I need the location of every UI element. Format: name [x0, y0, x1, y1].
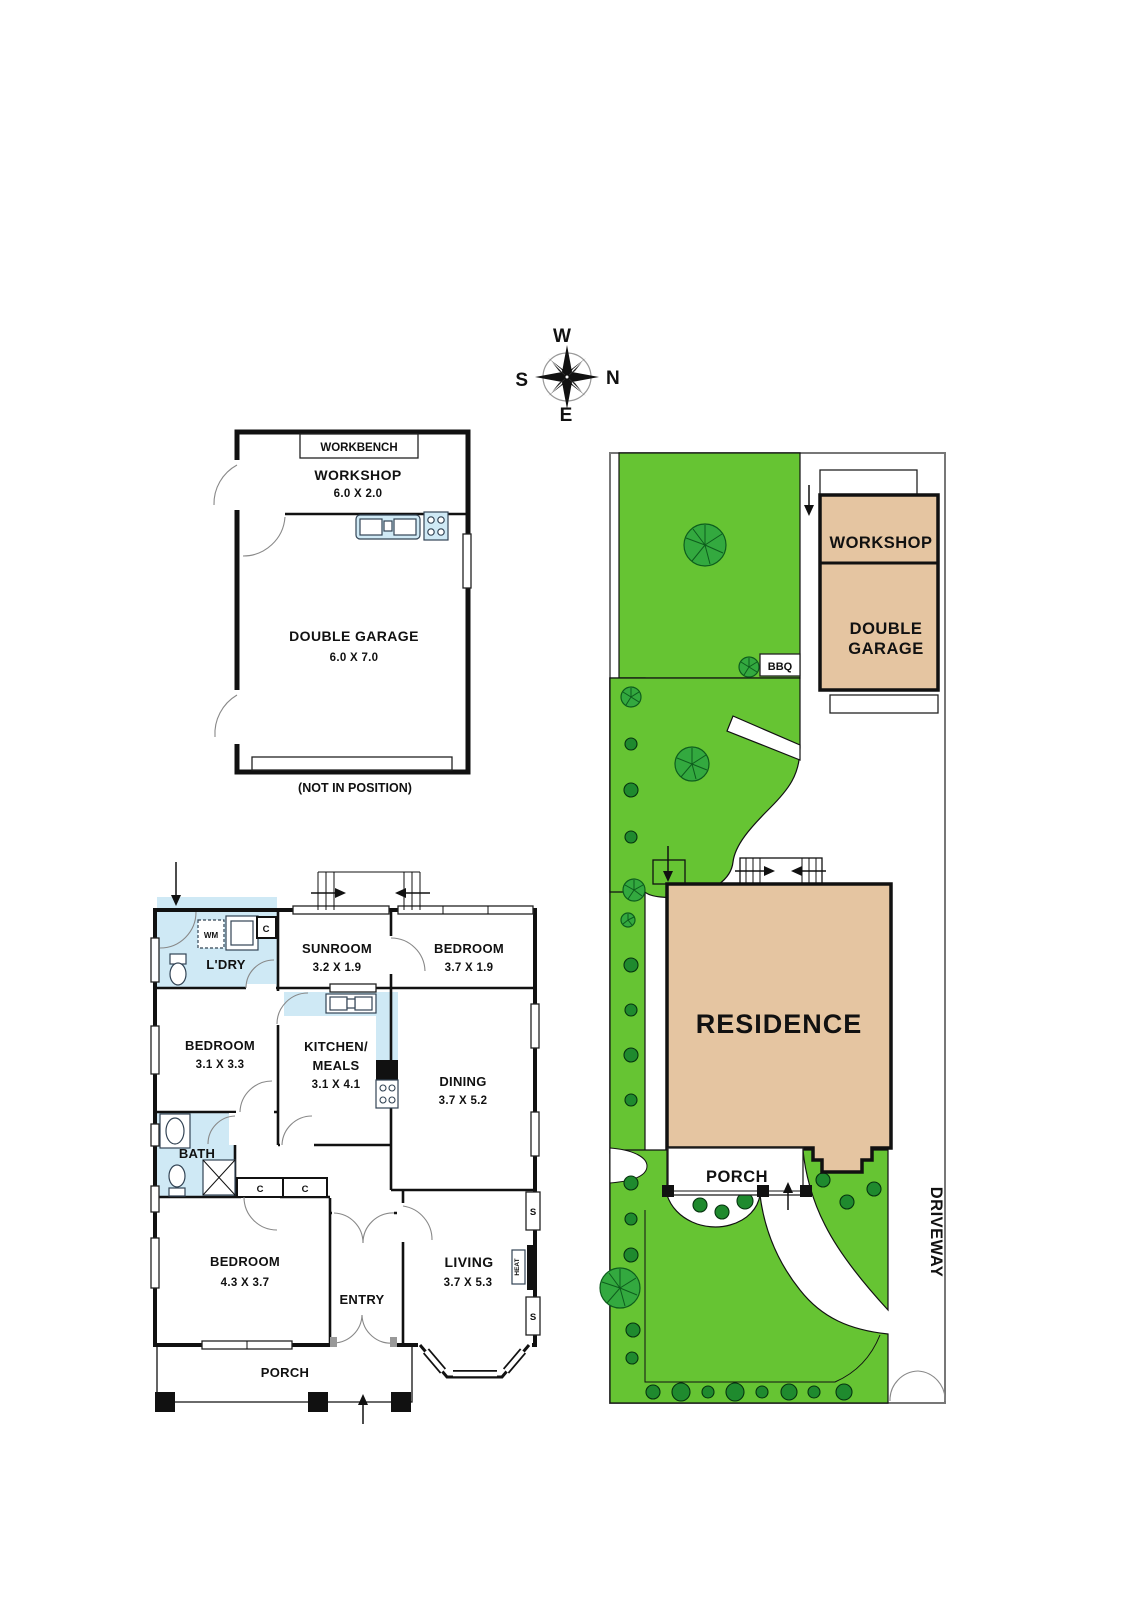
laundry-label: L'DRY	[206, 957, 246, 972]
kitchen-label-2: MEALS	[313, 1058, 360, 1073]
site-garage-label-2: GARAGE	[848, 640, 923, 658]
porch-pillar	[662, 1185, 674, 1197]
sink-icon	[356, 515, 420, 539]
window	[151, 1186, 159, 1212]
not-in-position-note: (NOT IN POSITION)	[298, 781, 412, 795]
heater-icon	[527, 1245, 537, 1290]
toilet-icon	[169, 1165, 185, 1196]
porch-pillar	[800, 1185, 812, 1197]
dining-dims: 3.7 X 5.2	[439, 1095, 488, 1107]
site-plan: WORKSHOP DOUBLE GARAGE BBQ RESIDENCE POR…	[600, 453, 945, 1403]
sunroom-label: SUNROOM	[302, 941, 372, 956]
tree-icon	[623, 879, 645, 901]
basin-icon	[160, 1114, 190, 1148]
door-jamb	[330, 1337, 337, 1347]
living-label: LIVING	[444, 1254, 493, 1270]
gate-icon	[890, 1371, 945, 1401]
kitchen-dims: 3.1 X 4.1	[312, 1079, 361, 1091]
svg-text:C: C	[257, 1184, 264, 1195]
site-garage-block	[820, 495, 938, 690]
closet-3: C	[283, 1178, 327, 1197]
svg-text:HEAT: HEAT	[514, 1258, 521, 1275]
door-jamb	[390, 1337, 397, 1347]
dining-label: DINING	[439, 1074, 486, 1089]
compass-east: E	[560, 405, 573, 426]
svg-text:S: S	[530, 1207, 536, 1218]
residence-label: RESIDENCE	[696, 1009, 863, 1039]
site-garage-label-1: DOUBLE	[850, 620, 923, 638]
tree-icon	[621, 687, 641, 707]
tree-icon	[684, 524, 726, 566]
closet-2: C	[237, 1178, 283, 1197]
floorplan-page: WORKSHOP DOUBLE GARAGE BBQ RESIDENCE POR…	[0, 0, 1131, 1600]
window	[531, 1112, 539, 1156]
cooktop-icon	[376, 1080, 398, 1108]
sunroom-dims: 3.2 X 1.9	[313, 962, 362, 974]
tree-icon	[675, 747, 709, 781]
site-workbench	[820, 470, 917, 497]
toilet-icon	[170, 954, 186, 985]
compass-south: S	[515, 370, 528, 391]
bbq-label: BBQ	[768, 661, 793, 673]
house-porch	[155, 1345, 412, 1424]
garage-outline	[237, 432, 468, 772]
driveway-label: DRIVEWAY	[927, 1187, 945, 1278]
bedroom1-label: BEDROOM	[434, 941, 504, 956]
svg-text:S: S	[530, 1312, 536, 1323]
workbench-label: WORKBENCH	[320, 442, 397, 454]
site-garage-door	[830, 695, 938, 713]
house-steps	[311, 872, 430, 910]
tree-icon	[600, 1268, 640, 1308]
tree-icon	[621, 913, 635, 927]
stove-icon	[424, 512, 448, 540]
bedroom3-label: BEDROOM	[210, 1254, 280, 1269]
bedroom1-dims: 3.7 X 1.9	[445, 962, 494, 974]
window	[398, 906, 533, 914]
site-workshop-label: WORKSHOP	[830, 534, 933, 552]
washing-machine-icon: WM	[198, 920, 224, 948]
lawn-right-bed	[803, 1150, 888, 1310]
floorplan-drawing: WORKSHOP DOUBLE GARAGE BBQ RESIDENCE POR…	[0, 0, 1131, 1600]
shower-icon	[203, 1160, 235, 1195]
kitchen-sink-icon	[326, 994, 376, 1013]
workshop-dims: 6.0 X 2.0	[334, 488, 383, 500]
oven-icon	[376, 1060, 398, 1080]
svg-text:C: C	[263, 924, 270, 935]
laundry-trough-icon	[226, 916, 258, 950]
bay-window	[420, 1345, 529, 1377]
kitchen-window	[330, 984, 376, 992]
double-garage-dims: 6.0 X 7.0	[330, 652, 379, 664]
sash-window-bottom: S	[526, 1297, 540, 1335]
living-dims: 3.7 X 5.3	[444, 1277, 493, 1289]
door-arc	[362, 1315, 394, 1343]
garage-window	[463, 534, 471, 588]
window	[151, 1238, 159, 1288]
door-arc	[334, 1315, 362, 1343]
workshop-entry-arrow	[804, 485, 814, 516]
svg-text:C: C	[302, 1184, 309, 1195]
double-garage-label: DOUBLE GARAGE	[289, 628, 419, 644]
outbuilding-plan: WORKBENCH WORKSHOP 6.0 X 2.0 DOUBLE GARA…	[214, 432, 471, 795]
window	[151, 1124, 159, 1146]
kitchen-label-1: KITCHEN/	[304, 1039, 368, 1054]
workshop-label: WORKSHOP	[314, 467, 401, 483]
bath-label: BATH	[179, 1146, 215, 1161]
porch-pillar	[391, 1392, 411, 1412]
window	[293, 906, 389, 914]
porch-pillar	[308, 1392, 328, 1412]
tree-icon	[739, 657, 759, 677]
entry-label: ENTRY	[339, 1292, 384, 1307]
sash-window-top: S	[526, 1192, 540, 1230]
lawn-middle	[610, 678, 800, 897]
window	[531, 1004, 539, 1048]
compass-icon: W N S E	[515, 326, 619, 426]
svg-text:WM: WM	[204, 931, 219, 940]
bedroom2-dims: 3.1 X 3.3	[196, 1059, 245, 1071]
compass-west: W	[553, 326, 571, 347]
bedroom2-label: BEDROOM	[185, 1038, 255, 1053]
window	[151, 938, 159, 982]
heat-label-box: HEAT	[512, 1250, 525, 1284]
garage-roller-door	[252, 757, 452, 770]
window	[151, 1026, 159, 1074]
house-plan: WM C	[151, 862, 540, 1424]
porch-pillar	[757, 1185, 769, 1197]
bedroom3-dims: 4.3 X 3.7	[221, 1277, 270, 1289]
house-porch-label: PORCH	[261, 1365, 309, 1380]
compass-north: N	[606, 368, 620, 389]
site-porch-label: PORCH	[706, 1168, 768, 1186]
porch-pillar	[155, 1392, 175, 1412]
closet-1: C	[257, 917, 276, 938]
door-arc	[243, 517, 285, 556]
